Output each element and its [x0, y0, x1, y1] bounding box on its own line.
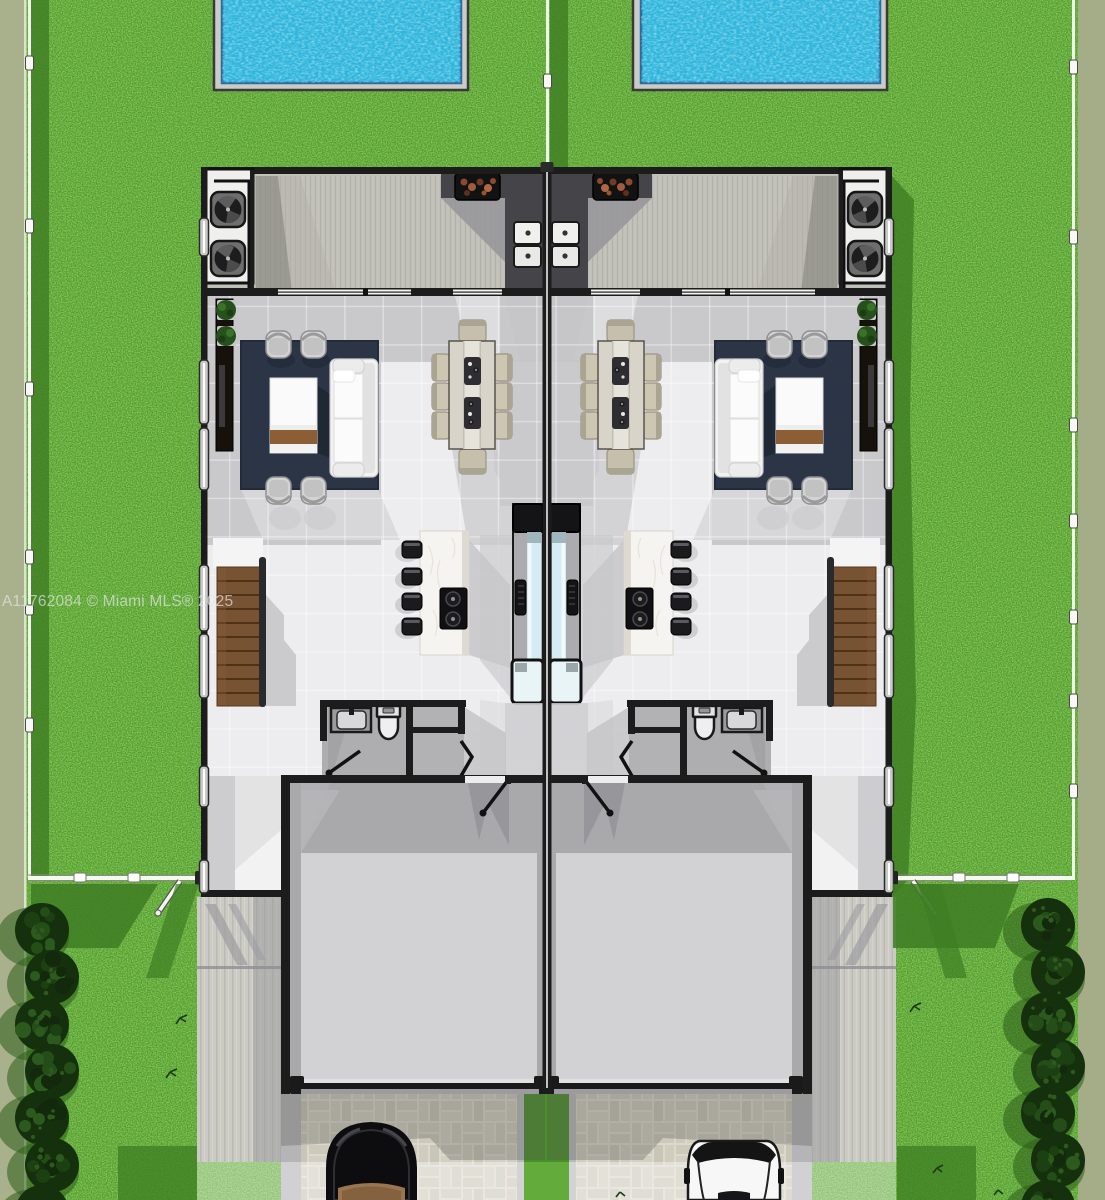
- svg-text:A11762084 © Miami MLS® 2025: A11762084 © Miami MLS® 2025: [2, 593, 233, 610]
